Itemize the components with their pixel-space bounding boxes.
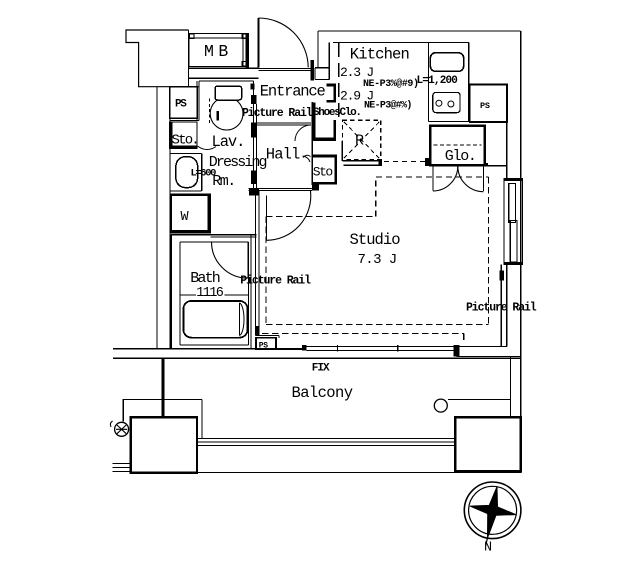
svg-text:MB: MB: [204, 42, 233, 61]
svg-text:Kitchen: Kitchen: [350, 46, 409, 64]
svg-text:Studio: Studio: [350, 231, 401, 249]
svg-text:Picture Rail: Picture Rail: [240, 275, 311, 288]
svg-text:Bath: Bath: [190, 270, 220, 287]
svg-text:Sto.: Sto.: [172, 133, 198, 149]
svg-text:N: N: [484, 541, 492, 556]
svg-text:PS: PS: [480, 101, 490, 111]
svg-text:Dressing: Dressing: [209, 154, 267, 171]
svg-text:7.3 J: 7.3 J: [358, 252, 397, 268]
svg-text:Rm.: Rm.: [212, 173, 235, 190]
svg-text:FIX: FIX: [312, 362, 330, 374]
svg-text:ShoesClo.: ShoesClo.: [313, 107, 361, 119]
svg-text:Hall: Hall: [266, 145, 300, 163]
svg-text:Picture Rail: Picture Rail: [242, 107, 313, 120]
svg-text:R: R: [355, 133, 364, 150]
svg-text:NE-P3%@#9): NE-P3%@#9): [363, 78, 419, 90]
svg-text:1116: 1116: [196, 286, 224, 301]
svg-text:L=1,200: L=1,200: [417, 75, 458, 87]
svg-text:Lav.: Lav.: [212, 133, 245, 151]
svg-text:Sto.: Sto.: [313, 164, 338, 179]
svg-text:W: W: [181, 210, 190, 225]
svg-text:PS: PS: [175, 98, 187, 110]
svg-text:2.3 J: 2.3 J: [340, 65, 373, 80]
svg-text:Entrance: Entrance: [260, 83, 326, 101]
svg-text:Balcony: Balcony: [292, 384, 353, 402]
svg-text:Glo.: Glo.: [445, 148, 476, 165]
svg-text:NE-P3@#%): NE-P3@#%): [364, 100, 412, 112]
